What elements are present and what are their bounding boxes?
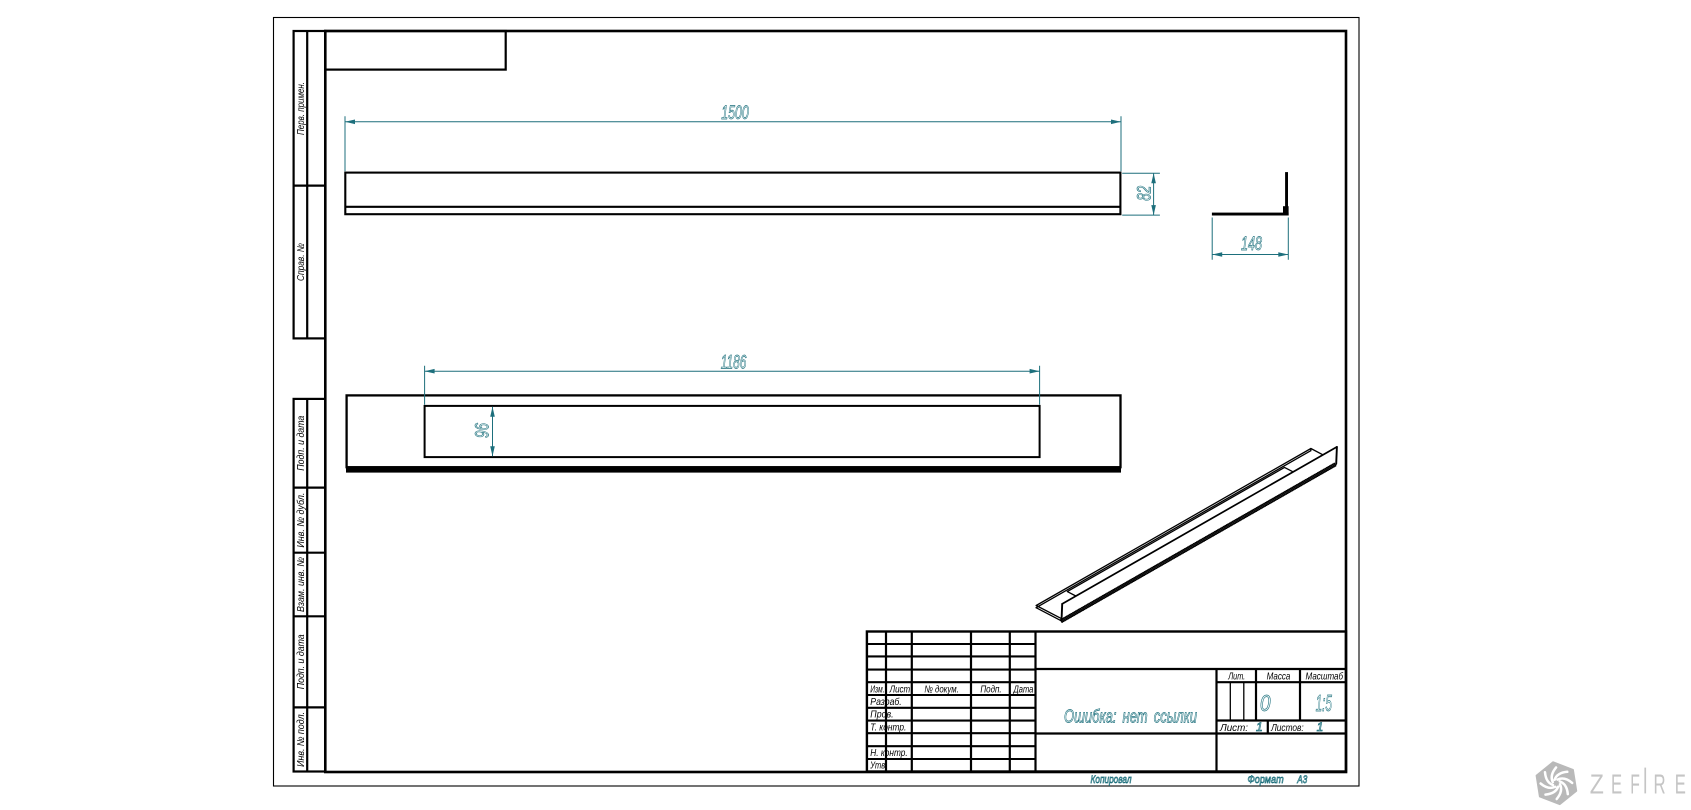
svg-text:1: 1 [1317, 720, 1324, 734]
svg-text:Т. контр.: Т. контр. [870, 722, 906, 733]
svg-text:Справ. №: Справ. № [296, 243, 307, 281]
svg-text:Н. контр.: Н. контр. [870, 748, 907, 759]
svg-text:Лит.: Лит. [1227, 671, 1245, 682]
svg-text:Подп.: Подп. [980, 684, 1001, 695]
svg-text:0: 0 [1260, 690, 1271, 716]
svg-text:1:5: 1:5 [1316, 690, 1332, 716]
svg-text:82: 82 [1133, 186, 1155, 201]
svg-text:Копировал: Копировал [1091, 774, 1132, 786]
svg-text:Утв.: Утв. [870, 761, 888, 772]
svg-text:Ошибка: нет ссылки: Ошибка: нет ссылки [1064, 707, 1197, 727]
svg-text:№ докум.: № докум. [924, 684, 959, 695]
svg-text:Взам. инв. №: Взам. инв. № [296, 557, 307, 612]
svg-text:F: F [1630, 768, 1640, 799]
svg-text:148: 148 [1241, 233, 1262, 255]
svg-text:Масса: Масса [1267, 671, 1291, 682]
svg-text:Z: Z [1590, 768, 1604, 799]
svg-text:Перв. примен.: Перв. примен. [296, 82, 307, 135]
svg-text:1186: 1186 [721, 352, 747, 374]
svg-text:1: 1 [1256, 720, 1263, 734]
svg-text:R: R [1654, 768, 1666, 799]
svg-text:А3: А3 [1297, 774, 1308, 786]
svg-text:Пров.: Пров. [870, 710, 893, 721]
svg-text:96: 96 [472, 423, 494, 438]
svg-text:Разраб.: Разраб. [870, 696, 901, 708]
svg-text:E: E [1611, 768, 1622, 799]
svg-text:Листов:: Листов: [1270, 723, 1304, 734]
svg-text:Инв. № подл.: Инв. № подл. [296, 712, 307, 767]
svg-text:E: E [1675, 768, 1686, 799]
svg-text:Подп. и дата: Подп. и дата [296, 415, 307, 470]
svg-text:Подп. и дата: Подп. и дата [296, 634, 307, 689]
svg-text:Изм.: Изм. [870, 684, 884, 695]
svg-text:Масштаб: Масштаб [1306, 670, 1344, 682]
svg-text:Лист: Лист [889, 684, 911, 695]
svg-text:Формат: Формат [1248, 774, 1284, 786]
svg-text:Лист:: Лист: [1219, 723, 1248, 734]
svg-text:Инв. № дубл.: Инв. № дубл. [295, 493, 307, 548]
svg-text:Дата: Дата [1013, 684, 1034, 695]
svg-text:1500: 1500 [721, 102, 749, 124]
